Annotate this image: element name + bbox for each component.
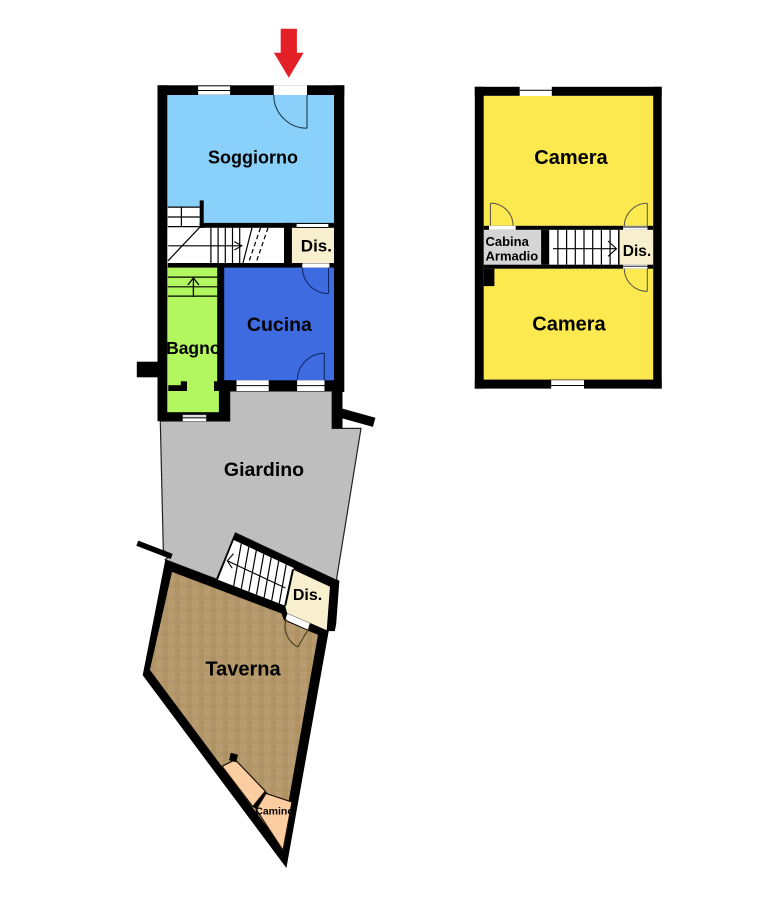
svg-text:Cucina: Cucina <box>247 314 312 336</box>
svg-text:Giardino: Giardino <box>224 459 304 481</box>
svg-text:Soggiorno: Soggiorno <box>208 148 298 168</box>
svg-text:Cabina: Cabina <box>486 234 530 249</box>
svg-text:Camera: Camera <box>532 314 606 336</box>
svg-text:Camino: Camino <box>255 806 294 818</box>
svg-text:Camera: Camera <box>534 147 608 169</box>
svg-text:Bagno: Bagno <box>166 338 220 358</box>
svg-text:Dis.: Dis. <box>623 243 651 260</box>
svg-text:Taverna: Taverna <box>205 659 281 681</box>
svg-text:Dis.: Dis. <box>293 587 322 604</box>
svg-text:Armadio: Armadio <box>486 249 539 264</box>
svg-text:Dis.: Dis. <box>301 237 332 256</box>
